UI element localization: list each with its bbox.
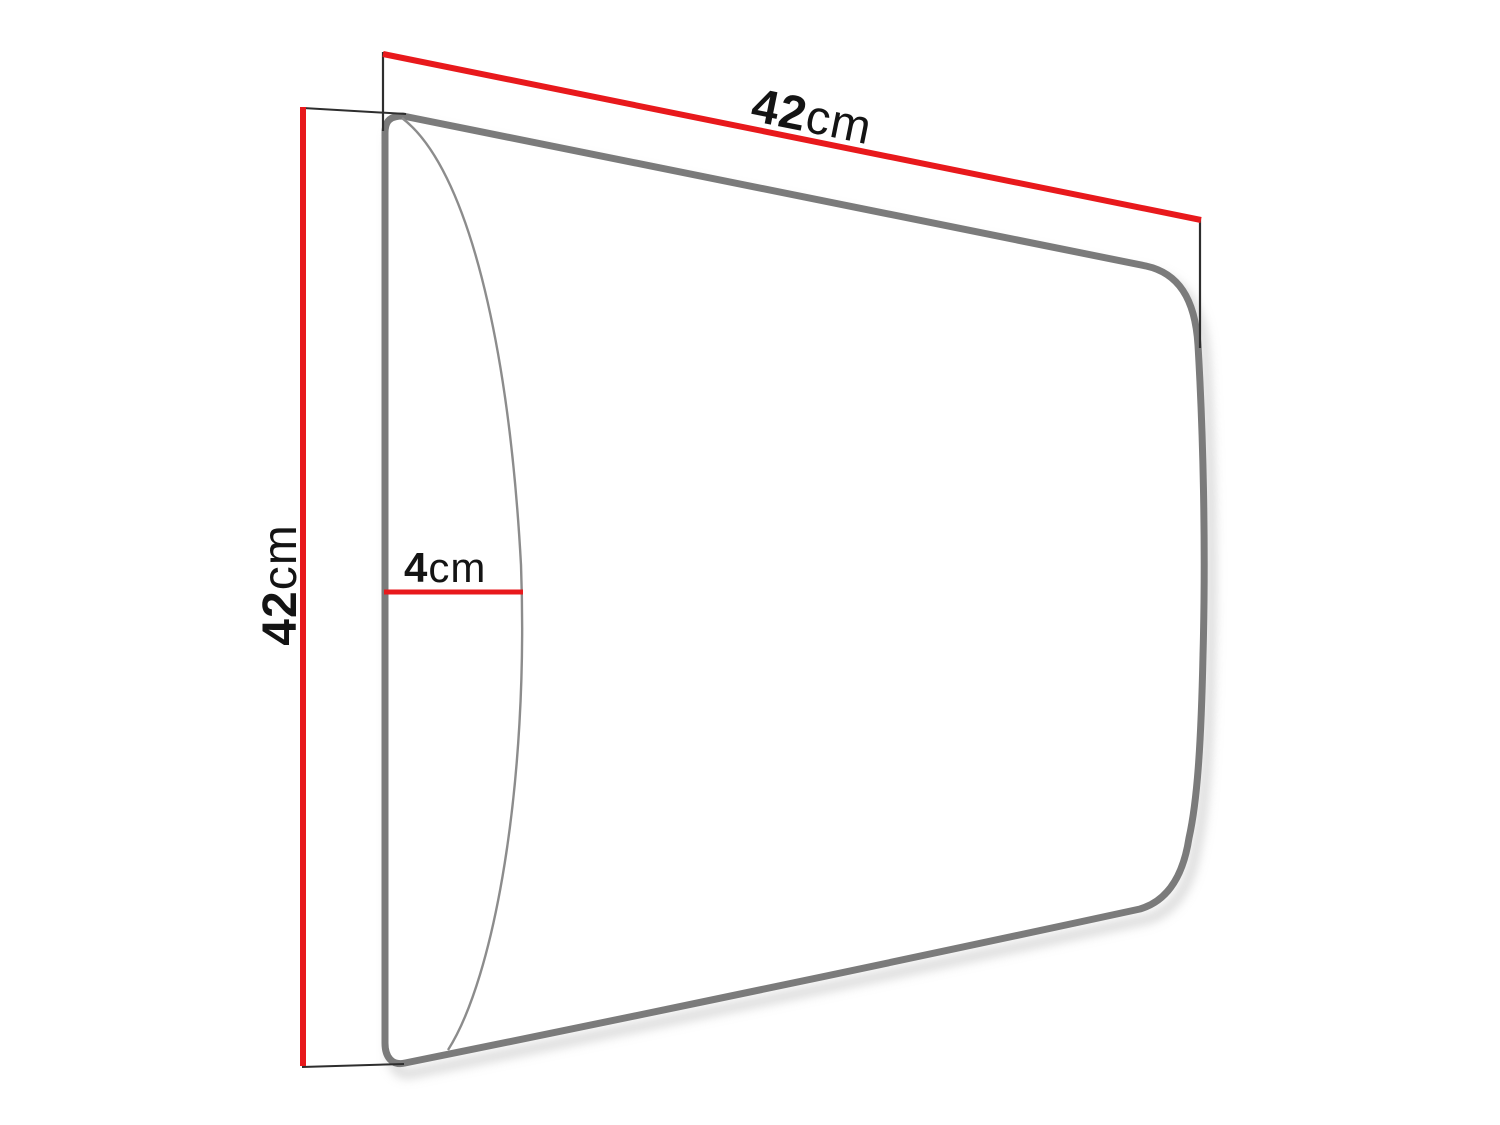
height-dimension-label: 42cm xyxy=(257,524,305,645)
extension-line-left-top xyxy=(303,108,406,114)
extension-line-left-bottom xyxy=(302,1064,404,1067)
dimension-diagram: 42cm 42cm 4cm xyxy=(0,0,1500,1125)
depth-value: 4 xyxy=(404,544,428,591)
depth-unit: cm xyxy=(428,544,486,591)
height-unit: cm xyxy=(254,524,307,590)
diagram-canvas xyxy=(0,0,1500,1125)
depth-dimension-label: 4cm xyxy=(404,547,486,589)
height-value: 42 xyxy=(254,590,307,645)
